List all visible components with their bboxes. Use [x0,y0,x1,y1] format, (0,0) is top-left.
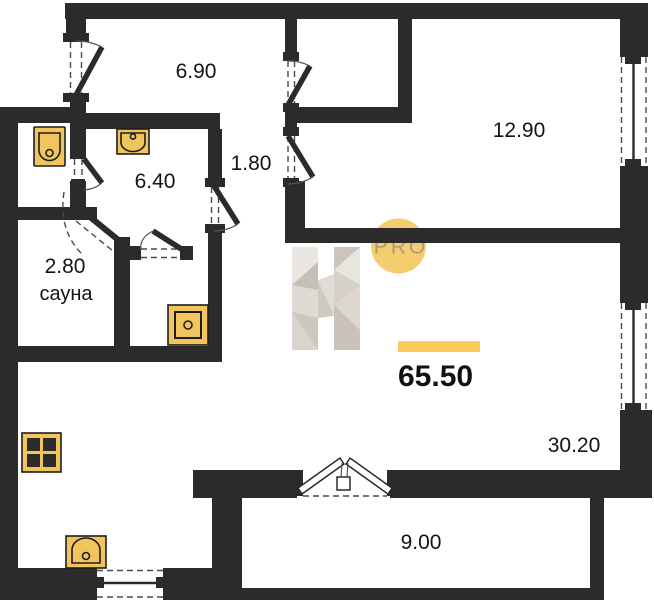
room-area-corridor: 1.80 [231,152,272,175]
wall-bedroom-west [398,19,412,123]
wall-left [0,107,18,600]
door-shower [141,231,186,258]
washbasin-icon [117,129,149,154]
wall-balcony-right [590,498,604,598]
room-area-living: 30.20 [548,434,601,457]
room-area-hallway: 6.90 [176,60,217,83]
total-area-accent-bar [398,341,480,352]
wall-right-bottom [390,410,652,498]
total-area-value: 65.50 [398,360,473,393]
wall-sauna-right [114,237,130,346]
door-handle-icon [337,477,350,490]
wall-corridor-west-lower [208,226,222,362]
door-bedroom [288,136,313,184]
wall-top [65,3,648,57]
room-area-balcony: 9.00 [401,531,442,554]
shower-tray-icon [168,305,208,345]
room-area-bathroom: 6.40 [135,170,176,193]
watermark-letter-h-icon [292,247,360,350]
wall-closet-bottom [285,107,412,123]
room-name-sauna: сауна [39,283,93,305]
kitchen-sink-icon [66,536,106,568]
wall-wet-bottom [18,346,222,362]
window-bedroom [622,57,647,166]
wall-corridor-west-upper [208,129,222,186]
stove-icon [22,433,61,472]
wall-hall-bath [86,113,220,129]
toilet-icon [34,127,65,166]
room-area-sauna: 2.80 [45,255,86,278]
door-closet [288,61,310,105]
room-area-bedroom: 12.90 [493,119,546,142]
wall-balcony-bottom [242,588,604,600]
wall-living-bottom-left [193,470,297,498]
wall-shower-door-stub-left [129,246,141,260]
window-kitchen [97,571,163,598]
wall-right-mid [620,166,648,303]
wall-bedroom-living [285,228,624,243]
door-entrance [71,41,103,95]
window-living [622,303,647,410]
wall-wc-east-upper [70,100,86,159]
floor-plan: PRO [0,0,654,600]
door-balcony-french [298,458,392,496]
wall-bottom-right [163,568,242,600]
